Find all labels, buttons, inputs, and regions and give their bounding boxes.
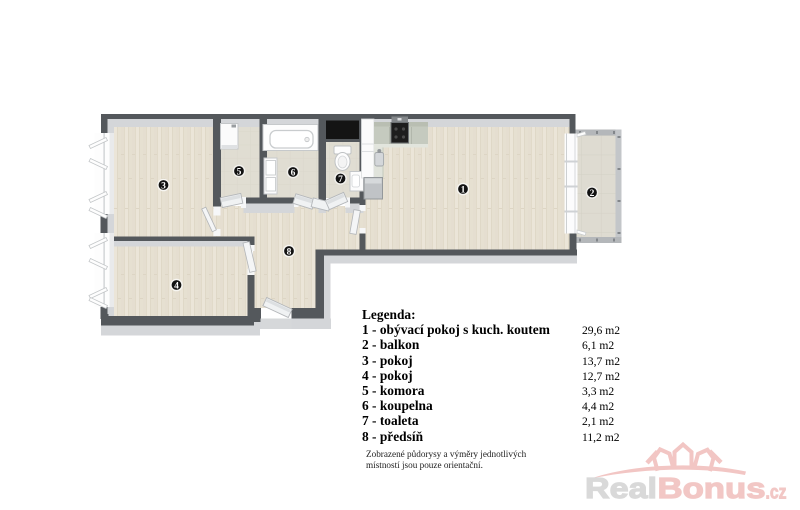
svg-text:Bonus: Bonus bbox=[658, 473, 766, 505]
svg-text:6: 6 bbox=[291, 168, 296, 178]
svg-text:3: 3 bbox=[161, 181, 166, 191]
svg-text:1: 1 bbox=[461, 185, 466, 195]
svg-text:8: 8 bbox=[287, 247, 292, 257]
svg-text:2: 2 bbox=[590, 189, 595, 199]
svg-text:5: 5 bbox=[237, 167, 242, 177]
svg-text:Real: Real bbox=[585, 473, 657, 505]
svg-text:4: 4 bbox=[174, 281, 179, 291]
svg-text:7: 7 bbox=[338, 175, 343, 185]
svg-text:.cz: .cz bbox=[766, 483, 787, 504]
